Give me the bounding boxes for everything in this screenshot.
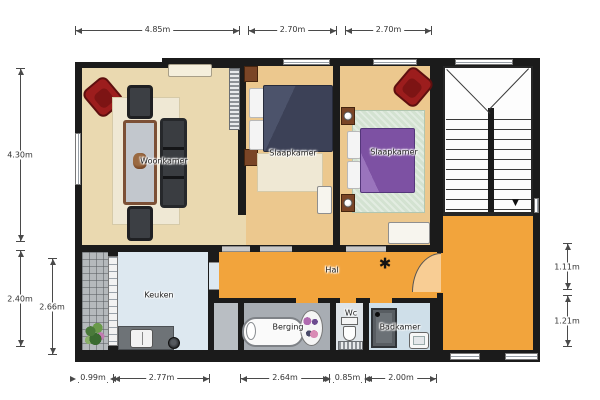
dim-arrow-icon: [425, 28, 431, 34]
dim-arrow-icon: [114, 376, 120, 382]
dim-left-3: 2.66m: [48, 258, 57, 355]
dim-label: 2.70m: [373, 25, 405, 34]
dim-label: 4.85m: [142, 25, 174, 34]
window-landing-bottom-1: [450, 353, 480, 360]
label-slaapkamer-2: Slaapkamer: [370, 148, 418, 157]
dim-tick: [209, 374, 210, 383]
dim-bottom-1: 0.99m: [78, 374, 108, 383]
dim-arrow-icon: [346, 28, 352, 34]
dim-arrow-icon: [18, 235, 24, 241]
dim-tick: [16, 241, 25, 242]
bed-2-duvet: [360, 128, 415, 193]
window-slaapkamer1: [283, 59, 330, 65]
door-slaapkamer1-hal: [260, 246, 292, 252]
armchair-black-bottom: [127, 206, 153, 241]
label-wc: Wc: [345, 309, 357, 318]
dim-arrow-icon: [203, 376, 209, 382]
dim-arrow-icon: [249, 28, 255, 34]
stairs-down-arrow-icon: ▼: [512, 199, 519, 208]
door-slaapkamer2-hal: [346, 246, 386, 252]
dim-arrow-icon: [430, 376, 436, 382]
hal-star-icon: ✱: [379, 257, 392, 272]
dim-label: 2.66m: [36, 302, 68, 311]
dim-arrow-icon: [50, 259, 56, 265]
label-badkamer: Badkamer: [380, 323, 421, 332]
dim-top-3: 2.70m: [345, 26, 432, 35]
dim-tick: [431, 26, 432, 35]
label-berging: Berging: [272, 323, 303, 332]
dim-bottom-2: 2.77m: [113, 374, 210, 383]
dim-arrow-icon: [565, 296, 571, 302]
nightstand-2a: [341, 107, 355, 125]
shower-head-icon: [375, 312, 380, 317]
lamp-icon: [344, 112, 353, 121]
dim-label: 2.00m: [385, 373, 417, 382]
nightstand-1b: [244, 149, 258, 166]
dim-tick: [563, 289, 572, 290]
dim-label: 4.30m: [4, 151, 36, 160]
dim-tick: [336, 26, 337, 35]
dim-arrow-icon: [18, 251, 24, 257]
kitchen-sink: [130, 329, 153, 348]
dim-arrow-icon: [325, 376, 331, 382]
bathroom-sink: [409, 332, 429, 349]
door-keuken-hal: [209, 262, 219, 290]
dim-label: 1.11m: [551, 262, 583, 271]
dim-label: 2.40m: [4, 294, 36, 303]
dim-arrow-icon: [76, 28, 82, 34]
dim-bottom-3: 2.64m: [240, 374, 330, 383]
sink-basin: [413, 336, 425, 345]
window-stairwell: [455, 59, 513, 65]
toilet-tank: [341, 317, 358, 325]
dresser-2: [388, 222, 430, 244]
dim-bottom-4: 0.85m: [333, 374, 362, 383]
window-woonkamer-left: [75, 133, 81, 185]
window-slaapkamer2: [373, 59, 417, 65]
dim-left-1: 4.30m: [16, 68, 25, 242]
dim-arrow-icon: [50, 348, 56, 354]
nightstand-1a: [244, 66, 258, 82]
dim-tick: [239, 26, 240, 35]
armchair-seat: [400, 76, 423, 99]
window-landing-bottom-2: [505, 353, 538, 360]
pillow-2b: [347, 161, 361, 189]
dim-arrow-icon: [330, 28, 336, 34]
dim-label: 2.64m: [269, 373, 301, 382]
dim-label: 2.70m: [277, 25, 309, 34]
dim-label: 0.85m: [332, 373, 364, 382]
lamp-icon: [344, 199, 353, 208]
label-woonkamer: Woonkamer: [140, 157, 188, 166]
bed-1-rug: [257, 153, 323, 192]
floor-plan: 4.85m 2.70m 2.70m 4.30m 2.40m 2.66m 1.11…: [0, 0, 600, 400]
sink-divider: [142, 332, 143, 345]
dim-arrow-icon: [241, 376, 247, 382]
dim-arrow-icon: [565, 283, 571, 289]
bathtub-headrest: [246, 322, 256, 340]
dim-label: 1.21m: [551, 317, 583, 326]
dim-arrow-icon: [70, 376, 76, 382]
label-slaapkamer-1: Slaapkamer: [269, 149, 317, 158]
dim-arrow-icon: [565, 244, 571, 250]
stairs-left-flight: [446, 110, 488, 212]
dresser-1: [317, 186, 332, 214]
room-hal: [219, 252, 437, 298]
opening-woonkamer-slaapkamer1: [238, 215, 246, 245]
door-woonkamer-hal: [222, 246, 250, 252]
pillow-2a: [347, 131, 361, 159]
dim-arrow-icon: [233, 28, 239, 34]
toilet-bowl: [343, 326, 356, 341]
dim-tick: [48, 354, 57, 355]
door-wc-hal: [340, 298, 356, 303]
dim-right-2: 1.21m: [563, 295, 572, 347]
stairs-divider: [488, 108, 494, 212]
label-keuken: Keuken: [144, 291, 173, 300]
dim-top-1: 4.85m: [75, 26, 240, 35]
door-berging-hal: [296, 298, 318, 303]
radiator-wc: [338, 341, 363, 350]
dim-label: 0.99m: [77, 373, 109, 382]
dim-tick: [16, 346, 25, 347]
sideboard: [168, 64, 212, 77]
dim-arrow-icon: [18, 69, 24, 75]
landing: [443, 214, 533, 350]
dim-label: 2.77m: [146, 373, 178, 382]
closet: [214, 303, 238, 350]
trash-bin: [168, 337, 180, 349]
radiator-woonkamer: [229, 68, 240, 130]
dim-tick: [436, 374, 437, 383]
stairs-right-flight: [494, 110, 531, 212]
label-hal: Hal: [325, 266, 338, 275]
nightstand-2b: [341, 194, 355, 212]
balcony-plant: [84, 320, 106, 348]
dim-right-1: 1.11m: [563, 243, 572, 290]
armchair-black-top: [127, 85, 153, 119]
dim-tick: [563, 346, 572, 347]
dim-top-2: 2.70m: [248, 26, 337, 35]
bed-1-duvet: [263, 85, 333, 152]
door-badkamer-hal: [370, 298, 392, 303]
wall-notch: [75, 58, 162, 62]
dim-arrow-icon: [366, 376, 372, 382]
dim-left-2: 2.40m: [16, 250, 25, 347]
dim-bottom-5: 2.00m: [365, 374, 437, 383]
balcony-door: [108, 256, 118, 346]
dim-arrow-icon: [565, 340, 571, 346]
dim-arrow-icon: [18, 340, 24, 346]
window-stairs-right: [534, 198, 539, 213]
